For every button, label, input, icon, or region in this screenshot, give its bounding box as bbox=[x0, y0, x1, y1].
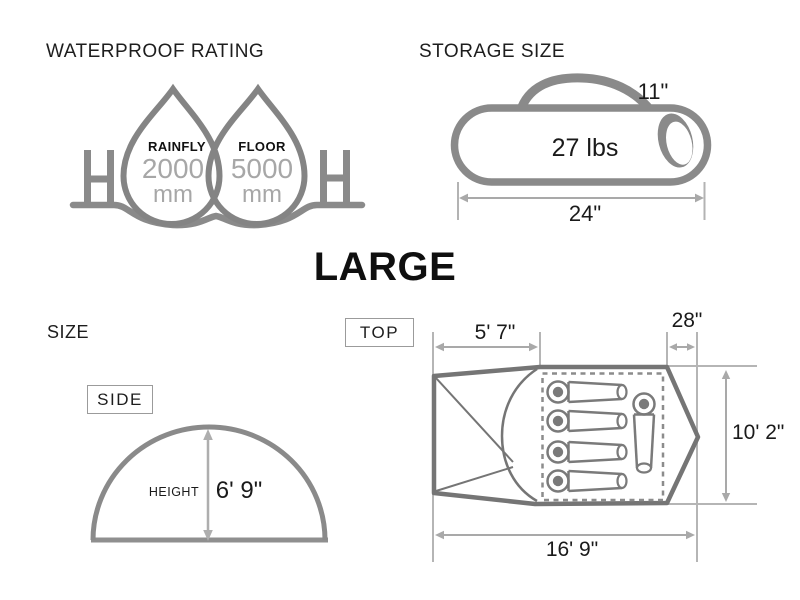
rainfly-rating-unit: mm bbox=[133, 183, 213, 207]
floor-label: FLOOR bbox=[226, 140, 298, 153]
height-label: HEIGHT bbox=[145, 486, 203, 499]
side-view-label: SIDE bbox=[87, 385, 153, 414]
rainfly-label: RAINFLY bbox=[141, 140, 213, 153]
bag-length-value: 24" bbox=[557, 203, 613, 225]
bag-diameter-value: 11" bbox=[625, 81, 681, 103]
letter-h-left-icon bbox=[84, 150, 114, 203]
tent-length-value: 16' 9" bbox=[536, 538, 608, 561]
waterproof-drops-icon bbox=[60, 75, 370, 235]
rear-depth-value: 28" bbox=[662, 309, 712, 332]
rainfly-rating-value: 2000 bbox=[133, 155, 213, 183]
letter-h-right-icon bbox=[320, 150, 350, 202]
tent-width-value: 10' 2" bbox=[732, 421, 800, 444]
vestibule-depth-value: 5' 7" bbox=[460, 321, 530, 344]
height-value: 6' 9" bbox=[207, 479, 271, 503]
floor-rating-value: 5000 bbox=[222, 155, 302, 183]
size-section-title: SIZE bbox=[47, 322, 89, 343]
storage-size-title: STORAGE SIZE bbox=[419, 41, 565, 63]
floor-rating-unit: mm bbox=[222, 183, 302, 207]
waterproof-rating-title: WATERPROOF RATING bbox=[46, 41, 264, 63]
tent-spec-sheet: WATERPROOF RATING RAINFLY 2000 mm FLOOR … bbox=[0, 0, 800, 600]
bag-weight-value: 27 lbs bbox=[540, 136, 630, 161]
tent-size-name: LARGE bbox=[285, 247, 485, 287]
top-view-label: TOP bbox=[345, 318, 414, 347]
top-view-diagram bbox=[425, 310, 775, 570]
